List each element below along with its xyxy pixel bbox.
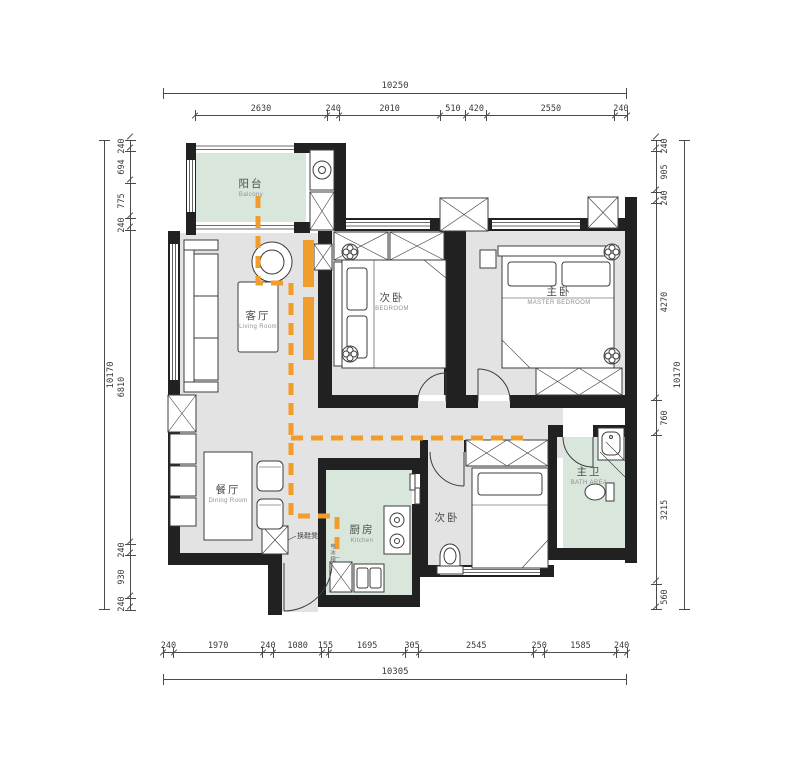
kitchen-sink-icon bbox=[354, 564, 384, 592]
dim-label: 2550 bbox=[541, 104, 561, 114]
dimension-total-left: 10170 bbox=[92, 140, 105, 610]
dim-label: 3215 bbox=[660, 500, 670, 520]
dimension-total-top: 10250 bbox=[163, 80, 627, 94]
dim-label: 2630 bbox=[251, 104, 271, 114]
dim-total-label: 10170 bbox=[106, 358, 116, 391]
dim-segment: 2550 bbox=[487, 103, 615, 123]
dimension-total-right: 10170 bbox=[684, 140, 697, 610]
dim-segment: 3215 bbox=[648, 436, 668, 584]
dim-segment: 305 bbox=[405, 640, 419, 660]
dim-segment: 775 bbox=[118, 183, 138, 219]
dim-segment: 2010 bbox=[339, 103, 440, 123]
dim-segment: 240 bbox=[615, 103, 627, 123]
dim-segment: 2630 bbox=[195, 103, 327, 123]
dim-segment: 240 bbox=[263, 640, 274, 660]
dim-total-label: 10305 bbox=[378, 667, 411, 677]
dim-segment: 240 bbox=[163, 640, 174, 660]
dim-label: 1695 bbox=[357, 641, 377, 651]
floor-plan-page: 阳台 Balcony 客厅 Living Room 次卧 BEDROOM 主卧 … bbox=[0, 0, 810, 762]
dim-segment: 1970 bbox=[174, 640, 263, 660]
dim-label: 2010 bbox=[379, 104, 399, 114]
dim-segment: 1585 bbox=[545, 640, 616, 660]
dim-label: 510 bbox=[445, 104, 460, 114]
dim-segment: 240 bbox=[327, 103, 339, 123]
dim-segment: 240 bbox=[616, 640, 627, 660]
dim-label: 905 bbox=[660, 164, 670, 179]
dim-label: 2545 bbox=[466, 641, 486, 651]
dim-label: 6810 bbox=[117, 377, 127, 397]
dim-total-label: 10170 bbox=[673, 358, 683, 391]
dim-segment: 560 bbox=[648, 584, 668, 610]
dim-label: 694 bbox=[117, 159, 127, 174]
sofa bbox=[184, 240, 218, 392]
dim-label: 930 bbox=[117, 570, 127, 585]
dim-segment: 930 bbox=[118, 556, 138, 599]
shoe-bench-label: 换鞋凳 bbox=[297, 531, 318, 541]
dim-segment: 6810 bbox=[118, 230, 138, 545]
dim-segment: 420 bbox=[466, 103, 487, 123]
tv-cabinet bbox=[303, 240, 314, 360]
dim-total-label: 10250 bbox=[378, 81, 411, 91]
dim-label: 1585 bbox=[570, 641, 590, 651]
dimension-total-bottom: 10305 bbox=[163, 666, 627, 680]
dimension-chain-right: 24090524042707603215560 bbox=[648, 140, 668, 610]
dim-segment: 4270 bbox=[648, 204, 668, 401]
dim-segment: 510 bbox=[440, 103, 466, 123]
dimension-chain-bottom: 24019702401080155169530525452501585240 bbox=[163, 640, 627, 660]
dim-segment: 250 bbox=[534, 640, 545, 660]
bath-toilet-icon bbox=[585, 483, 614, 501]
coffee-table bbox=[238, 282, 278, 352]
dim-segment: 1695 bbox=[329, 640, 405, 660]
fridge-label: 电冰箱 bbox=[328, 543, 336, 563]
dim-label: 420 bbox=[469, 104, 484, 114]
dim-label: 760 bbox=[660, 411, 670, 426]
dim-label: 560 bbox=[660, 589, 670, 604]
bed-second bbox=[472, 468, 548, 568]
dim-label: 1080 bbox=[287, 641, 307, 651]
dimension-chain-top: 263024020105104202550240 bbox=[195, 103, 627, 123]
dim-segment: 1080 bbox=[273, 640, 322, 660]
dim-segment: 694 bbox=[118, 151, 138, 183]
dim-label: 305 bbox=[404, 641, 419, 651]
dim-label: 4270 bbox=[660, 292, 670, 312]
stove-icon bbox=[384, 506, 410, 554]
dim-segment: 2545 bbox=[419, 640, 534, 660]
bath-sink-icon bbox=[598, 428, 624, 460]
dim-label: 775 bbox=[117, 193, 127, 208]
dimension-chain-left: 2406947752406810240930240 bbox=[118, 140, 138, 610]
dim-label: 1970 bbox=[208, 641, 228, 651]
washer-icon bbox=[310, 150, 334, 190]
